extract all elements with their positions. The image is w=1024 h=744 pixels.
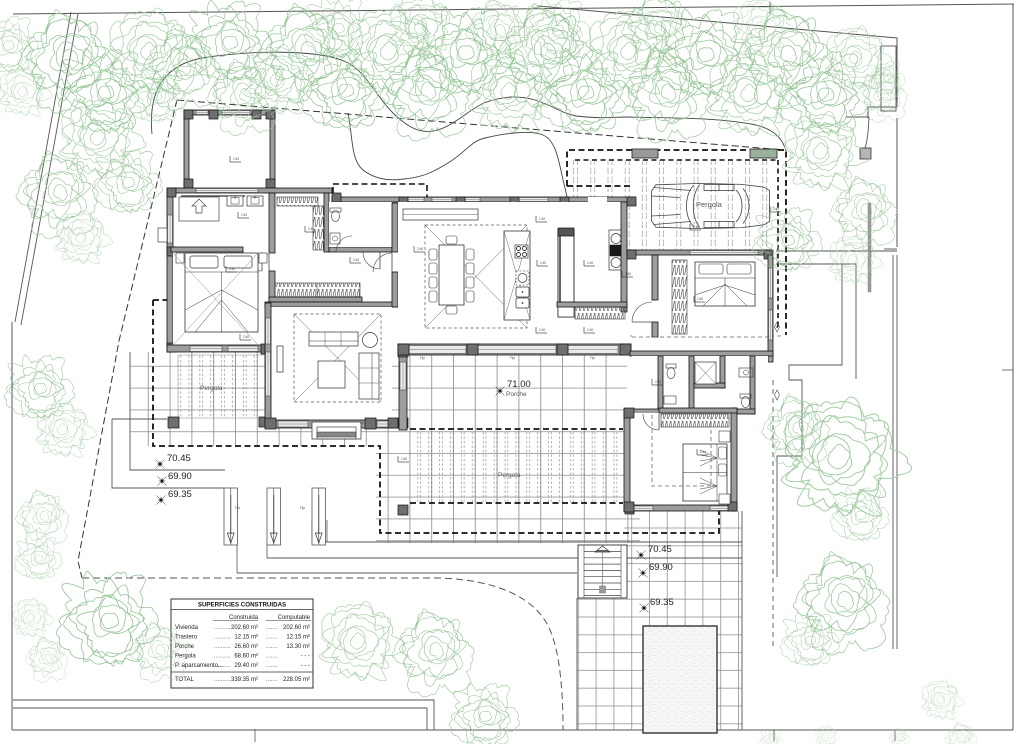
svg-text:Porche: Porche <box>175 644 195 650</box>
svg-text:Fijo: Fijo <box>360 421 365 425</box>
svg-text:2.40: 2.40 <box>655 380 661 384</box>
svg-text:2.40: 2.40 <box>587 261 593 265</box>
svg-text:2.40: 2.40 <box>700 450 706 454</box>
svg-text:2.40: 2.40 <box>417 247 423 251</box>
svg-text:71.00: 71.00 <box>507 379 531 390</box>
svg-text:Pergola: Pergola <box>696 200 723 209</box>
svg-text:.......: ....... <box>266 644 278 650</box>
svg-text:Fijo: Fijo <box>300 506 305 510</box>
svg-text:2.40: 2.40 <box>625 272 631 276</box>
svg-text:Computable: Computable <box>278 615 311 621</box>
svg-text:2.40: 2.40 <box>353 258 359 262</box>
svg-text:2.40: 2.40 <box>241 213 247 217</box>
svg-text:Fijo: Fijo <box>590 356 595 360</box>
svg-text:202.60 m²: 202.60 m² <box>231 625 258 631</box>
svg-text:202.60 m²: 202.60 m² <box>283 625 310 631</box>
svg-text:.......: ....... <box>266 677 278 683</box>
svg-text:339.35 m²: 339.35 m² <box>231 677 258 683</box>
svg-text:..........: .......... <box>214 654 231 660</box>
svg-text:TOTAL: TOTAL <box>175 677 194 683</box>
svg-text:2.40: 2.40 <box>693 225 699 229</box>
svg-text:Construida: Construida <box>229 615 259 621</box>
svg-text:2.40: 2.40 <box>401 457 407 461</box>
svg-text:SUPERFICIES CONSTRUIDAS: SUPERFICIES CONSTRUIDAS <box>198 602 286 609</box>
svg-text:29.40 m²: 29.40 m² <box>234 663 258 669</box>
svg-text:.......: ....... <box>266 625 278 631</box>
svg-text:2.40: 2.40 <box>539 328 545 332</box>
svg-text:68.60 m²: 68.60 m² <box>234 654 258 660</box>
svg-text:..........: .......... <box>214 635 231 641</box>
svg-text:Vivienda: Vivienda <box>175 625 199 631</box>
svg-text:.......: ....... <box>266 654 278 660</box>
svg-text:Fijo: Fijo <box>235 506 240 510</box>
svg-text:2.40: 2.40 <box>539 217 545 221</box>
svg-text:12.15 m²: 12.15 m² <box>286 635 310 641</box>
svg-text:Porche: Porche <box>506 391 527 398</box>
svg-text:2.40: 2.40 <box>540 261 546 265</box>
svg-text:228.05 m²: 228.05 m² <box>283 677 310 683</box>
svg-text:Trastero: Trastero <box>175 635 198 641</box>
svg-text:69.35: 69.35 <box>650 597 674 608</box>
svg-text:2.40: 2.40 <box>587 328 593 332</box>
svg-text:..........: .......... <box>214 677 231 683</box>
svg-text:2.40: 2.40 <box>697 297 703 301</box>
svg-text:12.15 m²: 12.15 m² <box>234 635 258 641</box>
svg-text:.......: ....... <box>266 635 278 641</box>
svg-text:13.30 m²: 13.30 m² <box>286 644 310 650</box>
svg-text:.......: ....... <box>266 663 278 669</box>
svg-text:69.90: 69.90 <box>168 471 192 482</box>
svg-text:70.45: 70.45 <box>648 544 672 555</box>
svg-text:Pergola: Pergola <box>498 472 521 479</box>
svg-text:26.60 m²: 26.60 m² <box>234 644 258 650</box>
svg-text:2.40: 2.40 <box>229 267 235 271</box>
svg-text:Pergola: Pergola <box>200 385 223 392</box>
svg-text:..........: .......... <box>214 644 231 650</box>
svg-text:Fijo: Fijo <box>420 356 425 360</box>
svg-text:69.90: 69.90 <box>649 562 673 573</box>
svg-text:2.40: 2.40 <box>308 227 314 231</box>
svg-text:- - -: - - - <box>301 654 310 660</box>
svg-text:2.40: 2.40 <box>243 335 249 339</box>
svg-text:..........: .......... <box>214 663 231 669</box>
svg-text:69.35: 69.35 <box>168 489 192 500</box>
svg-text:..........: .......... <box>214 625 231 631</box>
svg-text:70.45: 70.45 <box>167 453 191 464</box>
svg-text:2.40: 2.40 <box>233 157 239 161</box>
svg-text:Fijo: Fijo <box>510 356 515 360</box>
svg-text:- - -: - - - <box>301 663 310 669</box>
